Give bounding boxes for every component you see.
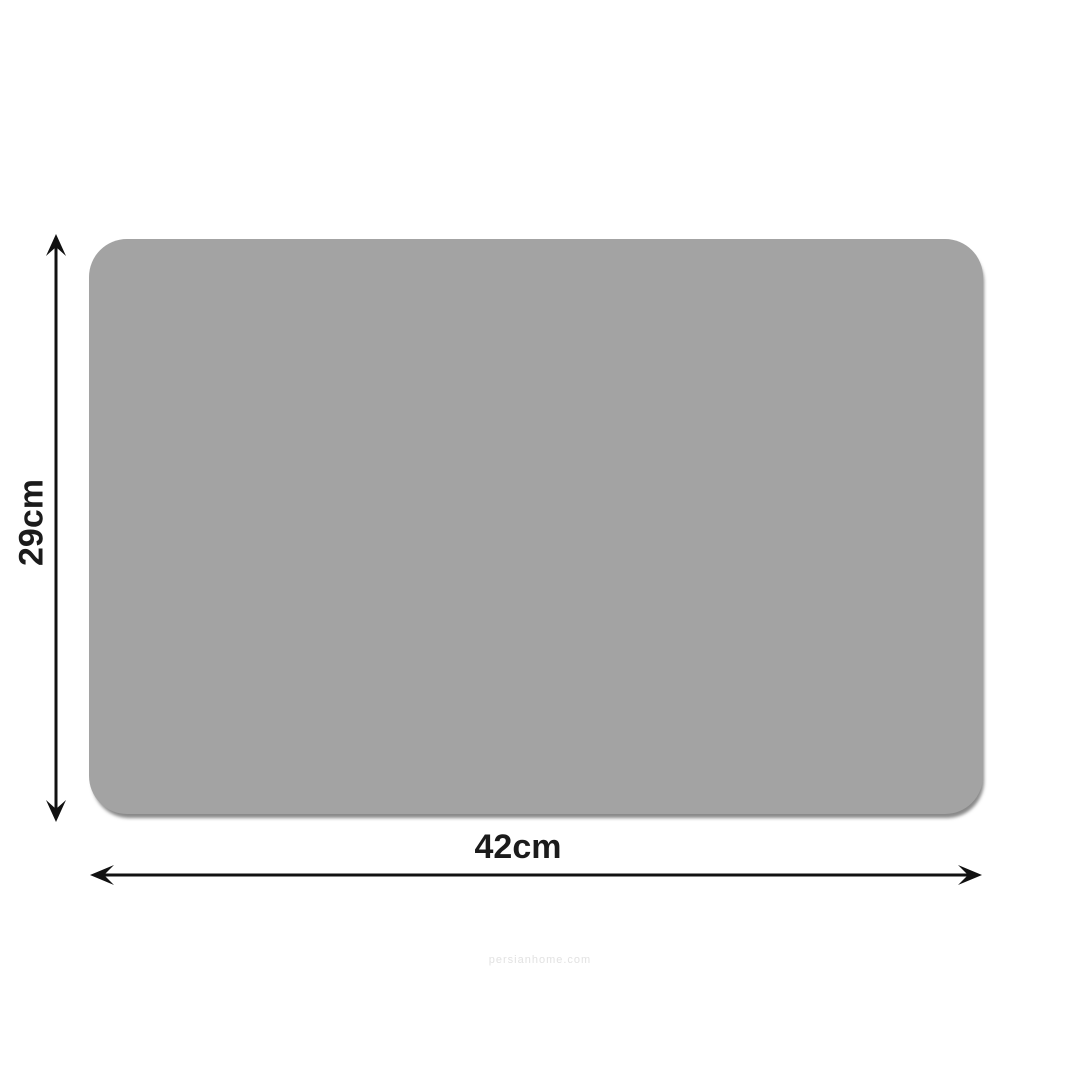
watermark: persianhome.com: [440, 954, 640, 966]
placemat-shape: [89, 239, 983, 814]
height-dimension-label: 29cm: [13, 463, 52, 583]
dimension-diagram: 29cm 42cm persianhome.com: [0, 0, 1080, 1080]
width-dimension-label: 42cm: [458, 828, 578, 867]
